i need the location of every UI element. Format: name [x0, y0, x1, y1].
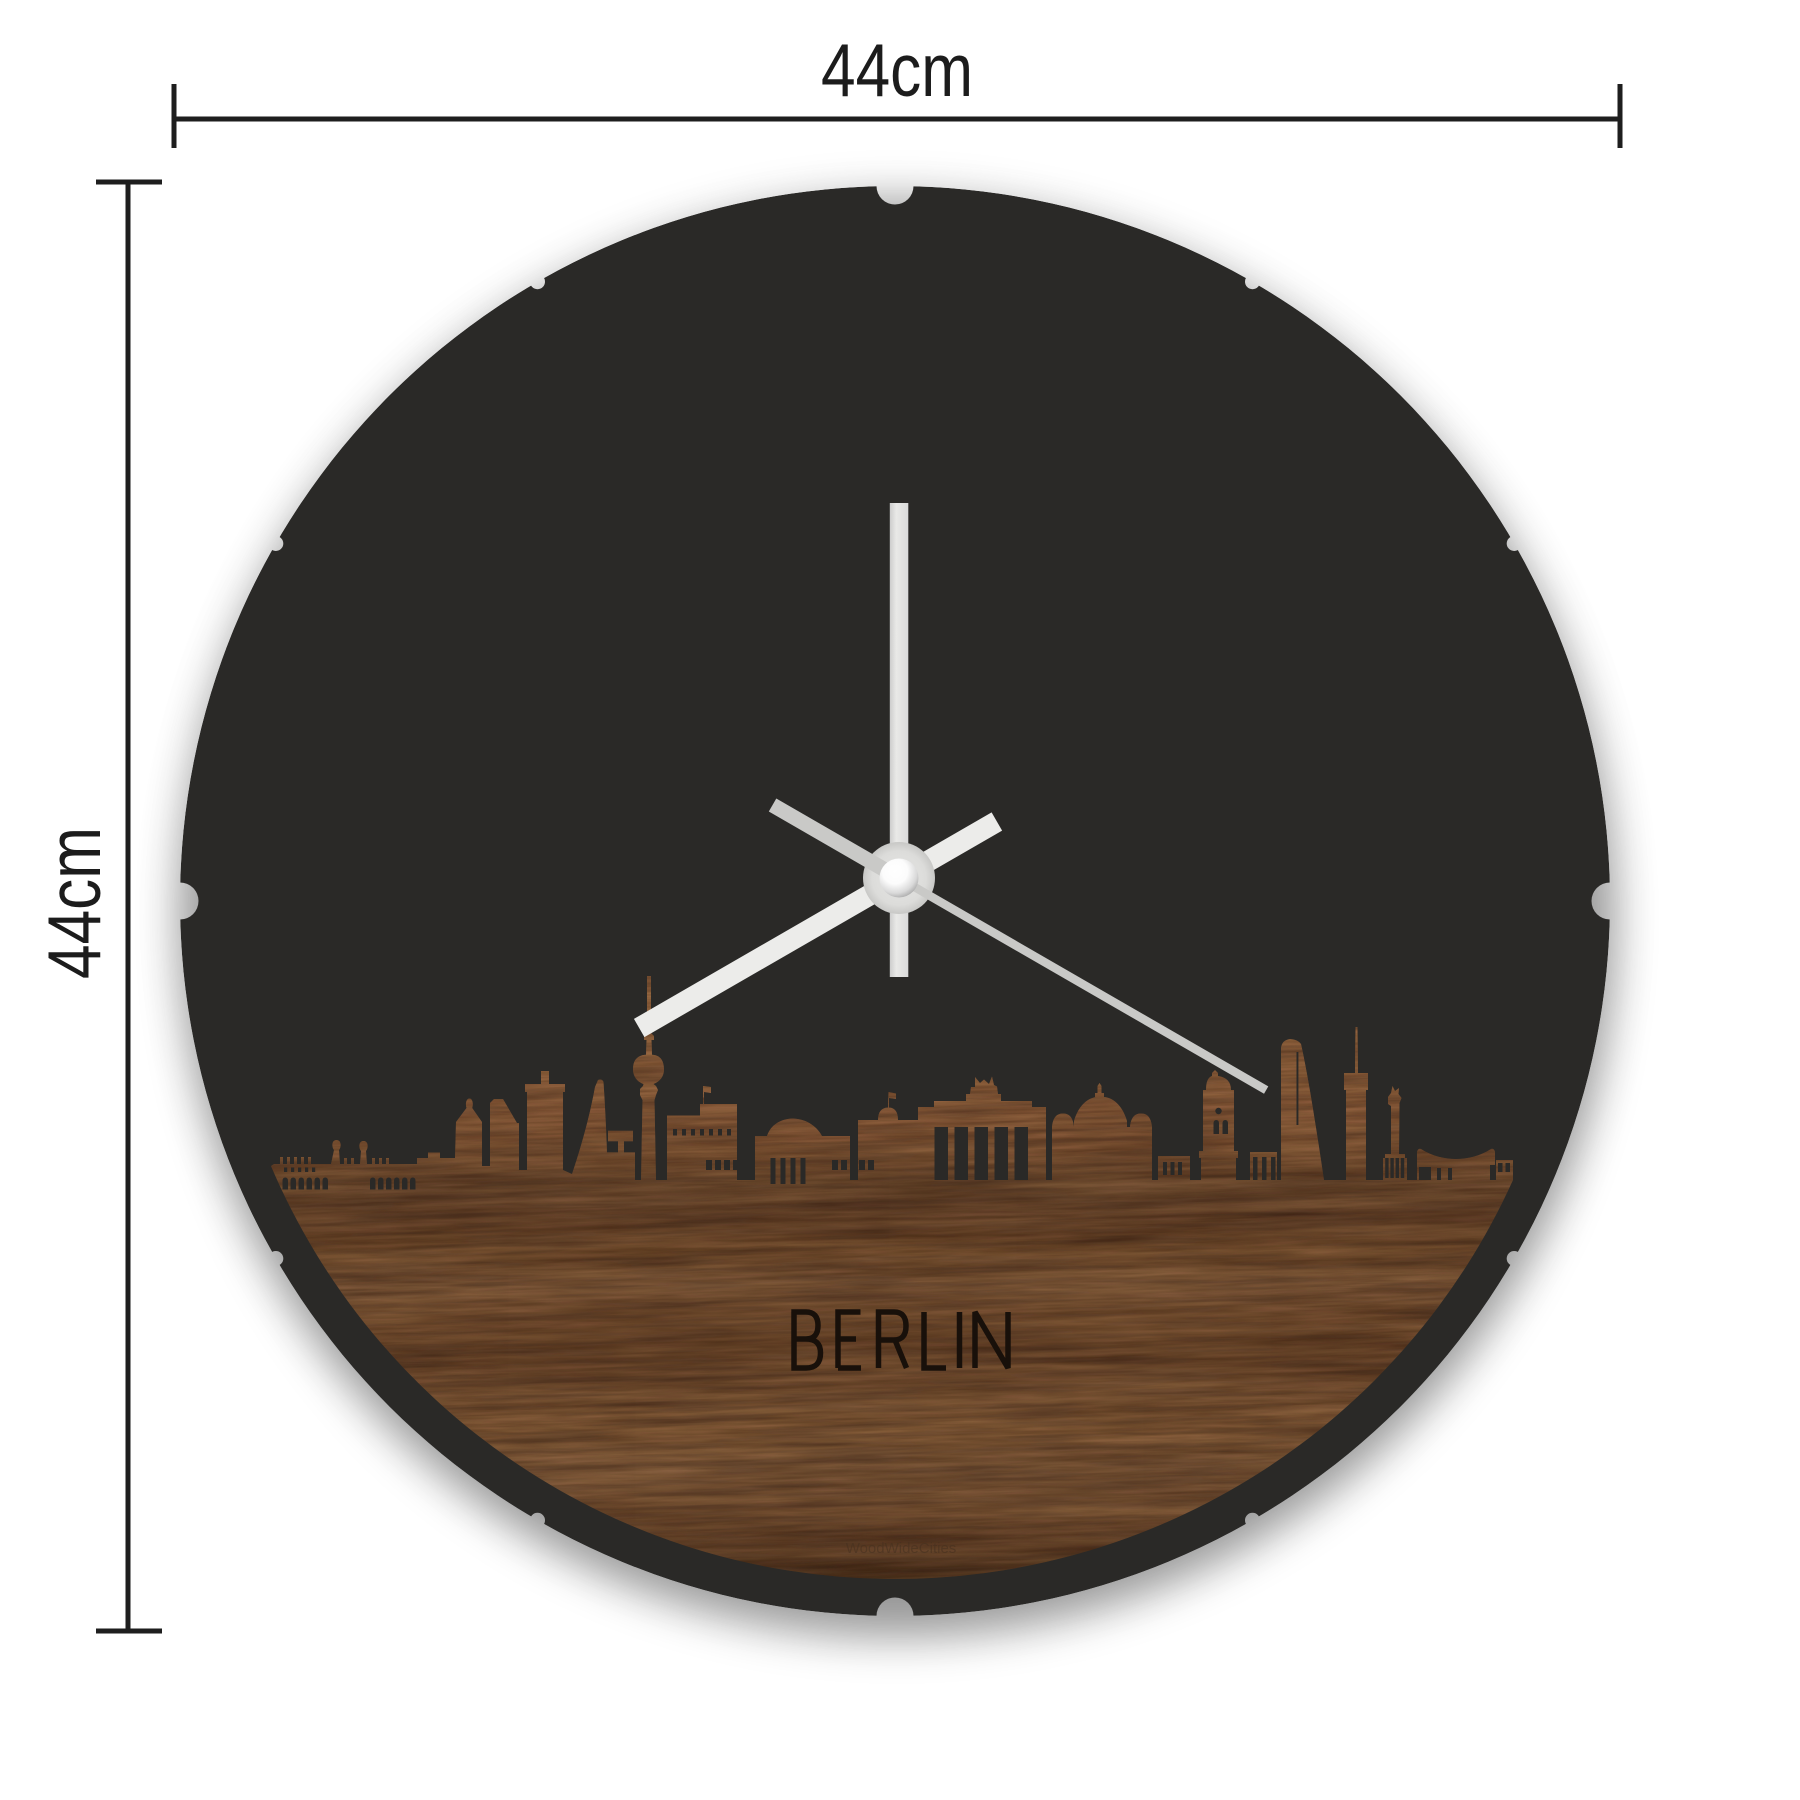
svg-text:WoodWideCities: WoodWideCities: [846, 1540, 957, 1557]
svg-text:44cm: 44cm: [32, 827, 116, 979]
svg-text:44cm: 44cm: [821, 28, 973, 112]
